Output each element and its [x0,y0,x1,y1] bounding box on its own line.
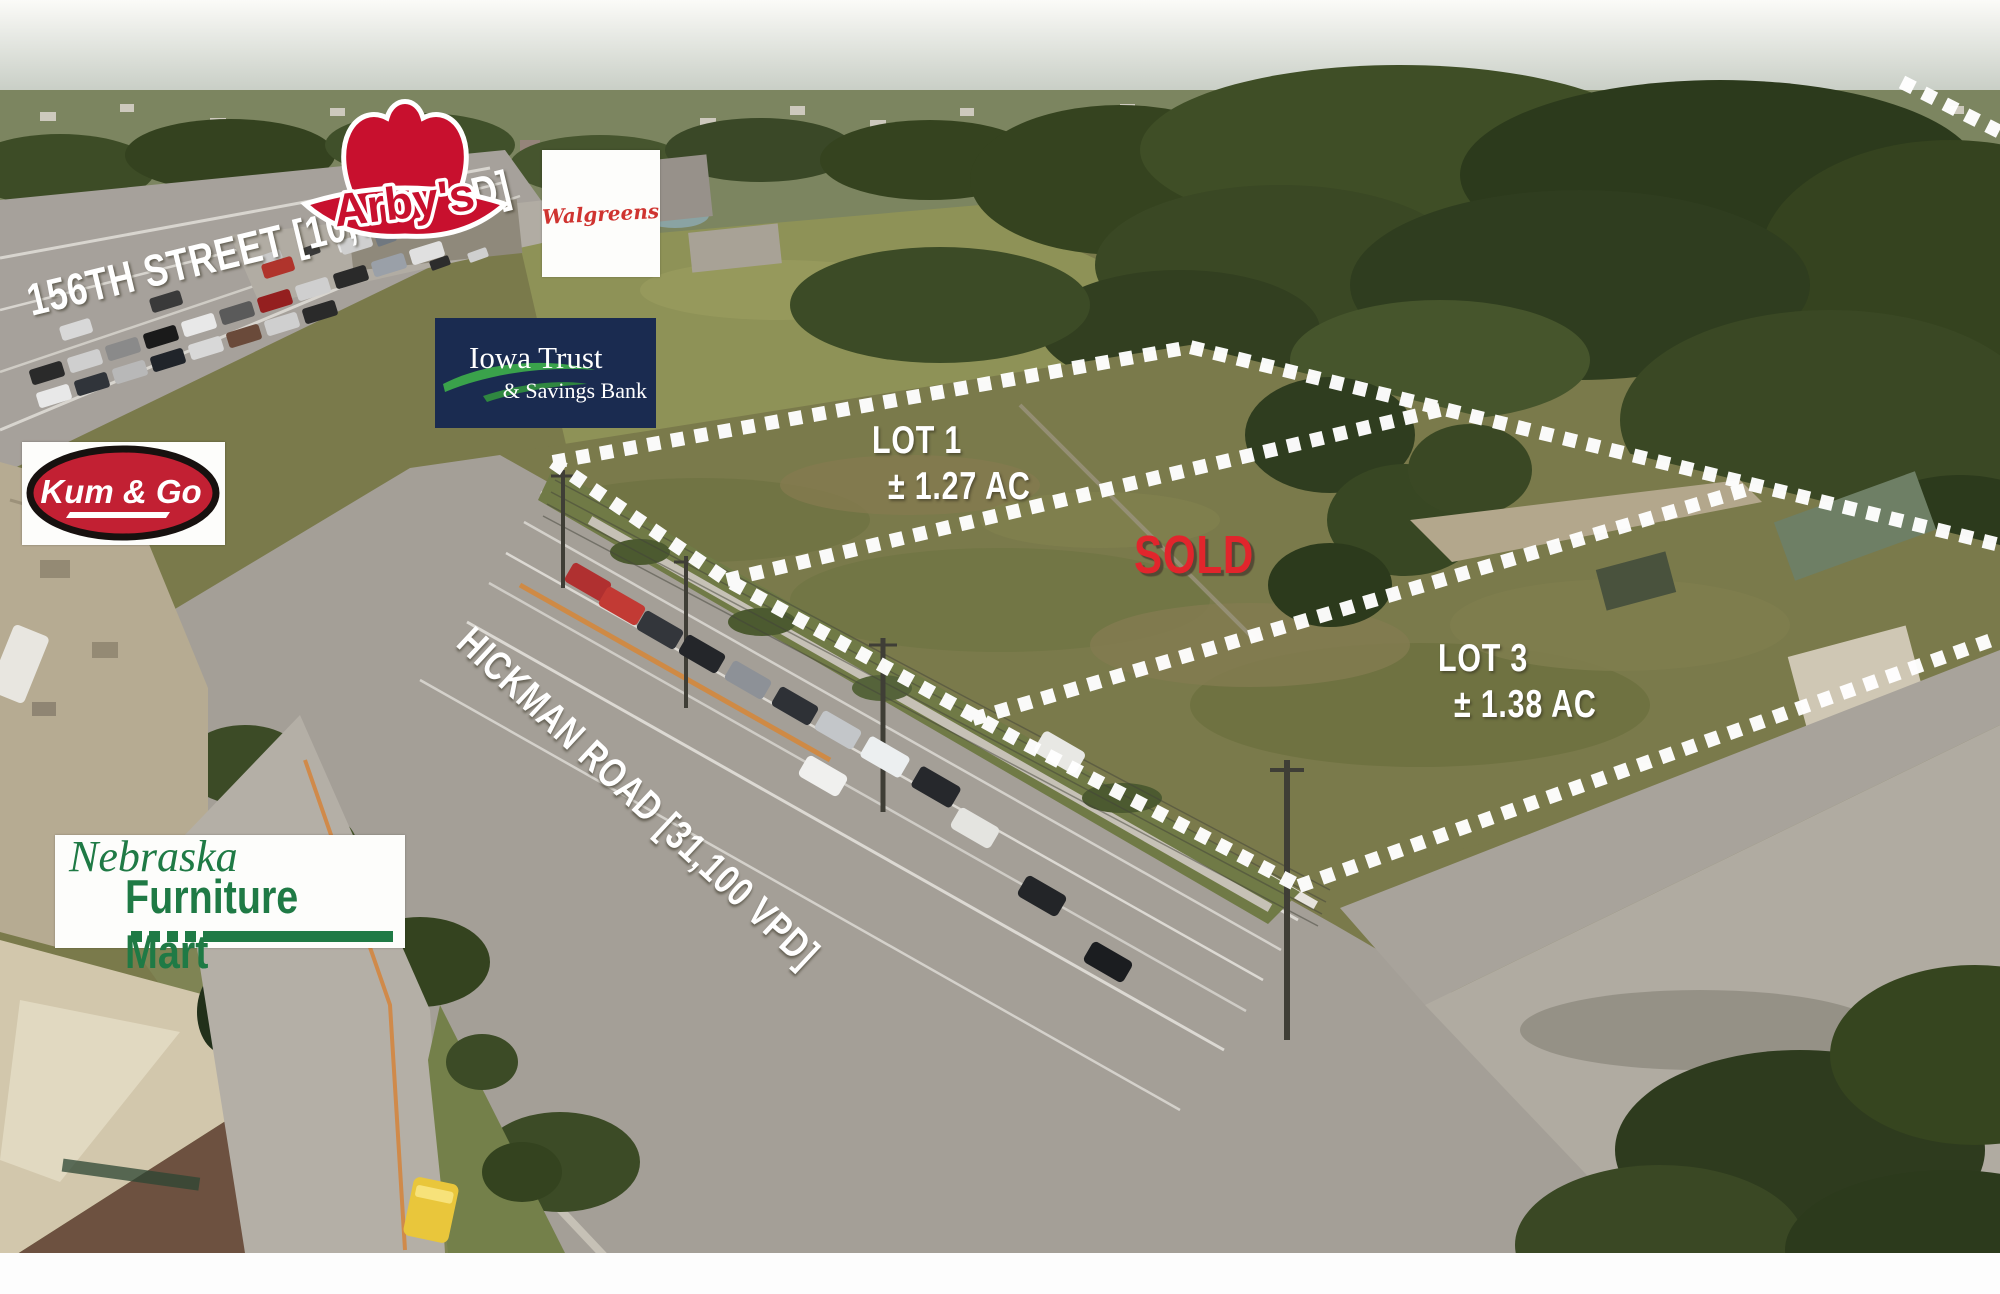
sold-label: SOLD [1134,524,1288,586]
nfm-logo: Nebraska Furniture Mart® [55,835,405,948]
lot1-label: LOT 1 ± 1.27 AC [872,418,1071,510]
lot1-name: LOT 1 [872,418,962,464]
lot1-area: ± 1.27 AC [888,464,1031,510]
kum-and-go-underline [66,512,170,518]
nfm-line2: Furniture Mart® [125,869,360,979]
kum-and-go-card: Kum & Go [22,442,225,545]
walgreens-wordmark: Walgreens [542,198,660,228]
iowa-trust-logo: Iowa Trust & Savings Bank [435,318,656,428]
sold-text: SOLD [1134,524,1254,586]
kum-and-go-wordmark: Kum & Go [40,473,201,510]
nfm-underline-bar [203,931,393,942]
aerial-property-photo: 156TH STREET [10,765 VPD] HICKMAN ROAD [… [0,0,2000,1294]
kum-and-go-logo: Kum & Go [22,442,225,545]
nfm-dot-4 [185,931,196,942]
photo-bottom-margin [0,1253,2000,1294]
arbys-hat-icon: Arby's [295,88,515,263]
nfm-dot-3 [167,931,178,942]
walgreens-logo: Walgreens [542,150,660,277]
iowa-trust-line2: & Savings Bank [503,378,647,403]
arbys-logo: Arby's [295,88,515,263]
nfm-dot-2 [149,931,160,942]
lot3-name: LOT 3 [1438,636,1528,682]
nfm-dot-1 [131,931,142,942]
iowa-trust-line1: Iowa Trust [469,340,603,375]
lot3-area: ± 1.38 AC [1454,682,1597,728]
lot3-label: LOT 3 ± 1.38 AC [1438,636,1637,728]
iowa-trust-card: Iowa Trust & Savings Bank [435,318,656,428]
